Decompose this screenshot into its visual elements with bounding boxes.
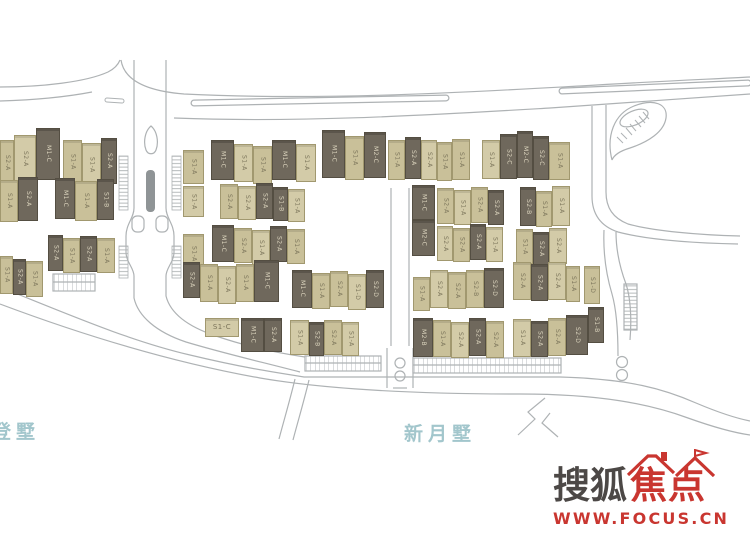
boulevard-road <box>0 60 750 120</box>
building-label: M1-C <box>264 272 270 289</box>
building-label: S1-A <box>519 330 525 346</box>
building: S1-A <box>75 181 97 221</box>
roundabout <box>617 357 628 381</box>
building: S1-A <box>236 264 254 302</box>
building-label: S2-A <box>454 283 460 299</box>
building-label: S2-A <box>475 329 481 345</box>
house-roof-icon <box>626 449 718 477</box>
building-label: S2-B <box>525 199 531 215</box>
building: S2-A <box>264 318 282 352</box>
road-fork-mark <box>518 398 558 437</box>
building-label: S1-A <box>297 330 303 346</box>
building: S1-B <box>97 179 114 220</box>
building: S1-A <box>452 139 470 180</box>
building-label: S2-A <box>17 269 23 285</box>
building-label: S1-A <box>260 157 266 173</box>
building: S2-A <box>471 187 488 223</box>
building: S2-D <box>484 268 504 308</box>
building-label: S2-A <box>426 152 432 168</box>
building: S2-A <box>437 226 453 261</box>
building-label: S1-A <box>83 193 89 209</box>
building-label: S2-A <box>330 330 336 346</box>
brand-text-sohu: 搜狐 <box>553 464 627 508</box>
building: S2-A <box>430 270 448 308</box>
building: M1-C <box>212 225 234 262</box>
building: S2-A <box>14 135 36 183</box>
building: S1-A <box>486 227 503 262</box>
building-label: S1-A <box>522 239 528 255</box>
building: S1-B <box>588 307 604 343</box>
building: S1-D <box>348 274 366 310</box>
building-label: M2-C <box>372 146 378 163</box>
building: S1-A <box>513 319 531 357</box>
tree-hatch <box>119 156 128 210</box>
building-label: M1-C <box>220 151 226 168</box>
building: S2-A <box>48 235 63 271</box>
building: S2-C <box>533 136 549 180</box>
building: S1-A <box>183 150 204 184</box>
building-label: S2-A <box>106 153 112 169</box>
bridge-icon <box>617 112 649 143</box>
building-label: S1-A <box>557 153 563 169</box>
building-label: S1-A <box>439 331 445 347</box>
building-label: S1-A <box>258 240 264 256</box>
building-label: S1-A <box>191 159 197 175</box>
building: S1-A <box>342 322 359 356</box>
building-label: M1-C <box>421 194 427 211</box>
building: S2-A <box>470 224 486 260</box>
building-label: S2-B <box>314 331 320 347</box>
building: S1-A <box>413 277 430 311</box>
building: S1-A <box>549 142 570 180</box>
building: S1-A <box>97 238 115 273</box>
building-label: S1-B <box>278 196 284 212</box>
building: S2-A <box>256 183 273 219</box>
building: S2-B <box>520 187 536 226</box>
building: S1-A <box>454 190 471 225</box>
building: S2-A <box>451 322 469 358</box>
building: S1-A <box>345 136 364 180</box>
building-label: S1-A <box>69 248 75 264</box>
building: S1-A <box>536 191 552 227</box>
building: S1-A <box>312 273 330 309</box>
building: S1-C <box>205 318 239 337</box>
building: S2-A <box>421 140 437 180</box>
building: S1-A <box>290 320 309 355</box>
building-label: S2-D <box>491 280 497 296</box>
building: M2-C <box>412 220 435 256</box>
building: S2-A <box>533 232 549 266</box>
building: S2-A <box>437 188 454 224</box>
building-label: S1-A <box>241 155 247 171</box>
building: S1-A <box>482 140 500 179</box>
building: S2-D <box>366 270 384 308</box>
building: S1-A <box>433 320 451 357</box>
building-label: S1-A <box>191 194 197 210</box>
building-label: S2-A <box>276 236 282 252</box>
building: S1-A <box>516 229 533 264</box>
building-label: S1-A <box>318 283 324 299</box>
building-label: S2-A <box>477 197 483 213</box>
building-label: S1-A <box>488 152 494 168</box>
building-label: S1-A <box>492 237 498 253</box>
building: M1-C <box>292 270 312 308</box>
building-label: S2-A <box>86 246 92 262</box>
building-label: S1-C <box>213 324 231 331</box>
building: S2-A <box>234 228 252 263</box>
building-label: S1-A <box>541 201 547 217</box>
building-label: S2-A <box>537 275 543 291</box>
building-label: M1-C <box>331 145 337 162</box>
building-label: S2-A <box>53 245 59 261</box>
building-label: S2-C <box>506 149 512 165</box>
building: M1-C <box>211 140 234 180</box>
building-label: S2-A <box>554 273 560 289</box>
building: S2-A <box>101 138 117 184</box>
building: S2-A <box>453 228 470 262</box>
building-label: S2-A <box>493 200 499 216</box>
building-label: S2-A <box>492 332 498 348</box>
building-label: S2-D <box>574 327 580 343</box>
building-label: S1-A <box>6 193 12 209</box>
building-label: S1-B <box>593 317 599 333</box>
building-label: S2-A <box>410 150 416 166</box>
site-plan: 搜狐 焦点 WWW.FOCUS.CN S2-AS2-AM1-CS1-AS1-AS… <box>0 0 750 560</box>
building-label: S1-A <box>352 150 358 166</box>
building-label: S1-A <box>303 155 309 171</box>
building: M2-B <box>413 318 433 357</box>
building-label: S2-A <box>224 277 230 293</box>
building-label: S1-A <box>348 331 354 347</box>
building-label: S2-B <box>472 281 478 297</box>
building-label: S1-A <box>442 154 448 170</box>
building-label: M1-C <box>299 280 305 297</box>
brand-url: WWW.FOCUS.CN <box>553 509 750 528</box>
building-label: S1-A <box>419 286 425 302</box>
area-label: 登墅 <box>0 417 40 444</box>
building-label: S1-A <box>570 276 576 292</box>
building-label: M1-C <box>250 326 256 343</box>
building: M1-C <box>322 130 345 178</box>
building-label: S1-A <box>294 198 300 214</box>
building-label: S1-A <box>293 239 299 255</box>
building: M1-C <box>272 140 296 180</box>
building-label: S1-B <box>103 192 109 208</box>
building-label: S2-A <box>244 195 250 211</box>
main-gate <box>387 348 413 388</box>
building: S2-A <box>488 190 504 225</box>
building: S1-A <box>287 229 305 264</box>
building-label: S2-A <box>475 234 481 250</box>
building-label: S2-A <box>519 273 525 289</box>
tree-hatch <box>172 156 181 210</box>
building: S1-A <box>552 186 570 226</box>
building: S2-A <box>238 186 256 220</box>
building: S2-A <box>218 266 236 304</box>
building-label: M2-C <box>421 229 427 246</box>
building: S2-A <box>80 236 97 272</box>
building-label: S2-A <box>442 236 448 252</box>
building-label: S2-A <box>4 155 10 171</box>
building: M1-C <box>55 178 75 219</box>
building: S1-A <box>566 266 580 302</box>
building: S2-A <box>548 262 566 300</box>
building: M1-C <box>254 260 279 302</box>
building-label: S1-A <box>70 154 76 170</box>
building: S2-A <box>18 177 38 221</box>
branch-road <box>279 379 295 439</box>
building-label: S1-A <box>206 275 212 291</box>
building-label: S1-A <box>458 152 464 168</box>
building: S2-A <box>486 321 504 358</box>
building: S2-A <box>531 321 548 357</box>
building: S1-A <box>437 142 452 181</box>
building: M1-C <box>412 185 435 220</box>
building: S2-D <box>566 315 588 355</box>
building: S1-A <box>183 186 204 217</box>
building-label: S2-A <box>443 198 449 214</box>
sohu-focus-watermark: 搜狐 焦点 WWW.FOCUS.CN <box>553 464 750 528</box>
building-label: S1-A <box>32 271 38 287</box>
building: S2-B <box>309 322 324 356</box>
building: S2-A <box>531 264 548 301</box>
building-label: S2-C <box>538 150 544 166</box>
building-label: S2-A <box>189 272 195 288</box>
building-label: S1-D <box>589 277 595 293</box>
building: S2-A <box>513 262 531 300</box>
building-label: S1-A <box>89 157 95 173</box>
building: S1-A <box>388 140 405 180</box>
building-label: M1-C <box>281 151 287 168</box>
building-label: S2-A <box>226 194 232 210</box>
building: S2-C <box>500 134 517 179</box>
building-label: S2-A <box>262 193 268 209</box>
branch-road <box>293 380 309 440</box>
building-label: S2-D <box>372 281 378 297</box>
tree-hatch <box>624 284 637 330</box>
building: M1-C <box>241 318 264 352</box>
building-label: S1-D <box>354 284 360 300</box>
building: S2-B <box>466 270 484 308</box>
building-label: S1-A <box>394 152 400 168</box>
building: S2-A <box>469 318 486 356</box>
building-label: S2-A <box>336 281 342 297</box>
building-label: S1-A <box>103 248 109 264</box>
building-label: S2-A <box>25 191 31 207</box>
building-label: S1-A <box>4 267 10 283</box>
central-axis <box>387 188 413 388</box>
building: S1-A <box>234 144 253 182</box>
building-label: M2-B <box>420 329 426 346</box>
building: S1-A <box>63 238 80 273</box>
building-label: S1-A <box>460 200 466 216</box>
building: S2-A <box>448 272 466 309</box>
building: S2-A <box>549 228 567 264</box>
building: M1-C <box>36 128 60 180</box>
building-label: S1-A <box>558 198 564 214</box>
building: S2-A <box>220 184 238 219</box>
building: S1-A <box>0 180 18 222</box>
building: S1-D <box>584 266 600 304</box>
pond-loop <box>610 102 666 160</box>
pond <box>617 106 650 131</box>
tree-hatch <box>119 246 128 278</box>
building: S1-A <box>253 146 272 184</box>
building: S2-A <box>270 226 287 262</box>
building-label: S2-A <box>554 329 560 345</box>
building: S2-A <box>548 318 566 356</box>
building-label: S2-A <box>555 238 561 254</box>
area-label: 新月墅 <box>404 419 476 446</box>
building-label: S2-A <box>538 241 544 257</box>
tree-hatch <box>172 246 181 278</box>
building-label: M1-C <box>45 145 51 162</box>
building-label: S2-A <box>22 151 28 167</box>
building: S1-A <box>0 256 13 294</box>
building: S1-A <box>288 189 305 222</box>
building-label: S2-A <box>240 238 246 254</box>
building: S2-A <box>183 262 200 298</box>
building: M2-C <box>364 132 386 178</box>
building-label: M2-C <box>522 146 528 163</box>
building: S1-A <box>26 261 43 297</box>
building-label: S1-A <box>242 275 248 291</box>
building: S2-A <box>324 320 342 355</box>
building-label: M1-C <box>220 235 226 252</box>
building-label: M1-C <box>62 190 68 207</box>
building: S2-A <box>13 259 26 295</box>
building: S1-A <box>200 264 218 302</box>
building: S2-A <box>330 271 348 307</box>
building: M2-C <box>517 131 533 178</box>
building-label: S2-A <box>459 237 465 253</box>
building-label: S2-A <box>537 331 543 347</box>
building: S1-A <box>296 144 316 182</box>
building-label: S2-A <box>436 281 442 297</box>
building: S2-A <box>405 137 421 179</box>
building-label: S2-A <box>457 332 463 348</box>
building: S1-B <box>273 187 288 221</box>
building-label: S2-A <box>270 327 276 343</box>
building-label: S1-A <box>191 246 197 262</box>
